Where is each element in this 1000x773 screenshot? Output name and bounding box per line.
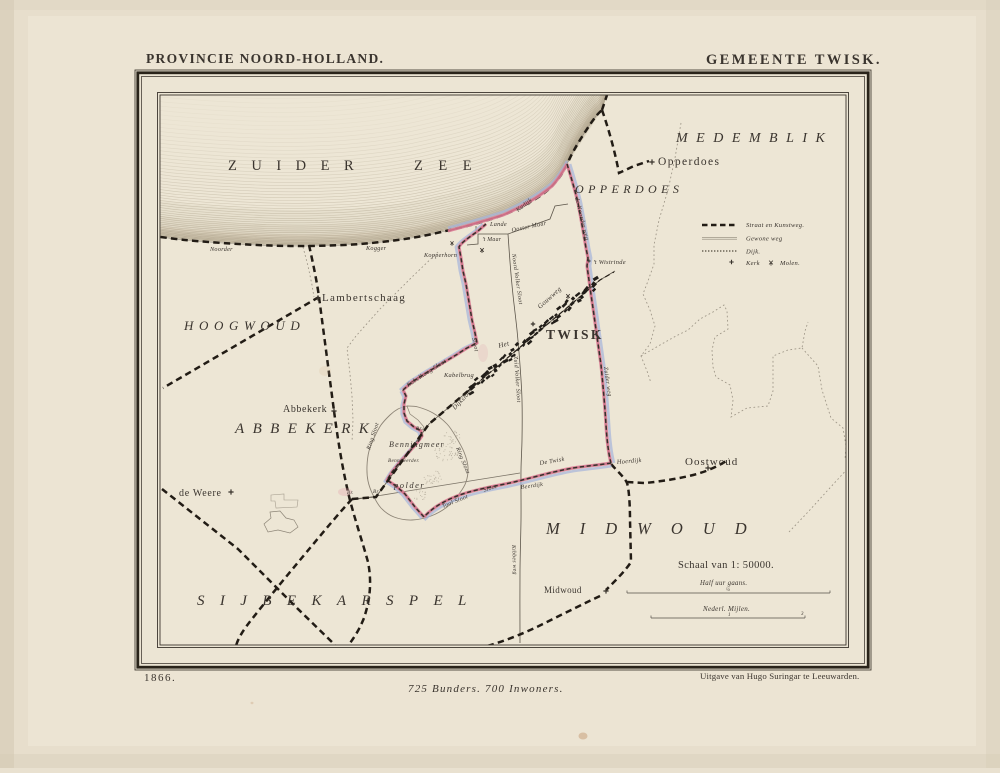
svg-text:Molen.: Molen.	[779, 260, 800, 267]
svg-text:Half uur gaans.: Half uur gaans.	[699, 580, 747, 587]
svg-text:Lambertschaag: Lambertschaag	[322, 292, 406, 304]
svg-text:¼: ¼	[726, 588, 730, 593]
svg-text:Benningmeer: Benningmeer	[389, 440, 445, 449]
svg-text:Gewone weg: Gewone weg	[746, 236, 783, 243]
svg-text:PROVINCIE NOORD-HOLLAND.: PROVINCIE NOORD-HOLLAND.	[146, 51, 384, 66]
svg-text:Bennewerder.: Bennewerder.	[388, 458, 420, 464]
svg-text:Kogger: Kogger	[365, 245, 387, 252]
svg-text:Kerk: Kerk	[745, 260, 760, 267]
svg-text:Br.: Br.	[347, 490, 354, 496]
svg-text:’t Maar: ’t Maar	[482, 237, 502, 243]
svg-text:725 Bunders. 700 Inwoners.: 725 Bunders. 700 Inwoners.	[408, 683, 564, 695]
svg-text:SIJBEKARSPEL: SIJBEKARSPEL	[197, 593, 482, 609]
svg-text:1: 1	[728, 613, 731, 618]
svg-text:polder: polder	[393, 480, 425, 490]
svg-text:Br.: Br.	[416, 426, 423, 432]
svg-text:Opperdoes: Opperdoes	[658, 156, 720, 168]
svg-text:OPPERDOES: OPPERDOES	[575, 182, 683, 196]
svg-text:GEMEENTE TWISK.: GEMEENTE TWISK.	[706, 52, 882, 68]
svg-text:Midwoud: Midwoud	[544, 585, 582, 595]
svg-text:Dijk.: Dijk.	[745, 249, 760, 256]
svg-text:Straat en Kunstweg.: Straat en Kunstweg.	[746, 222, 804, 229]
svg-text:Noorder: Noorder	[209, 246, 233, 253]
svg-text:Nederl. Mijlen.: Nederl. Mijlen.	[702, 605, 750, 613]
svg-text:Oostwoud: Oostwoud	[685, 456, 738, 468]
svg-text:Kabelbrug: Kabelbrug	[443, 372, 475, 379]
svg-text:ZUIDER: ZUIDER	[228, 158, 368, 174]
svg-text:HOOGWOUD: HOOGWOUD	[183, 318, 305, 333]
svg-text:Kopperhorn: Kopperhorn	[423, 252, 457, 259]
svg-text:ZEE: ZEE	[414, 158, 487, 174]
svg-text:1866.: 1866.	[144, 672, 176, 684]
svg-text:de Weere: de Weere	[179, 488, 222, 499]
svg-text:Lande: Lande	[489, 221, 507, 228]
svg-text:MEDEMBLIK: MEDEMBLIK	[675, 131, 833, 146]
svg-text:’t Wistrinde: ’t Wistrinde	[593, 259, 626, 266]
svg-text:Uitgave van Hugo Suringar te L: Uitgave van Hugo Suringar te Leeuwarden.	[700, 671, 859, 681]
svg-text:Abbekerk: Abbekerk	[283, 404, 327, 415]
svg-text:3: 3	[801, 612, 804, 617]
svg-text:MIDWOUD: MIDWOUD	[545, 519, 767, 538]
svg-text:ABBEKERK: ABBEKERK	[234, 421, 377, 437]
svg-text:TWISK: TWISK	[546, 327, 604, 342]
svg-text:Schaal van 1: 50000.: Schaal van 1: 50000.	[678, 560, 774, 571]
svg-text:Br.: Br.	[373, 489, 380, 495]
